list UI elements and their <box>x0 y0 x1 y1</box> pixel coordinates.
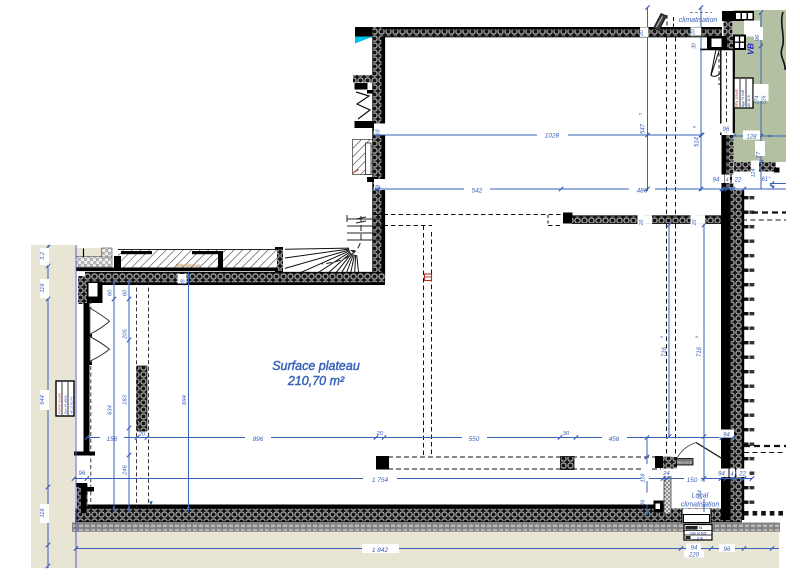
svg-text:547: 547 <box>641 123 647 134</box>
svg-text:183: 183 <box>123 394 129 404</box>
svg-text:20: 20 <box>639 30 645 37</box>
svg-text:24: 24 <box>662 471 669 477</box>
svg-text:896: 896 <box>253 436 264 443</box>
svg-text:60: 60 <box>108 289 114 296</box>
svg-text:FEN 125x95: FEN 125x95 <box>735 89 739 107</box>
svg-text:U IE: U IE <box>697 536 704 540</box>
svg-text:Vide dessus: Vide dessus <box>176 263 202 268</box>
svg-text:climatisation: climatisation <box>681 502 720 509</box>
svg-text:716: 716 <box>697 346 703 357</box>
svg-text:1028: 1028 <box>545 133 560 140</box>
svg-text:124: 124 <box>751 169 757 178</box>
svg-text:REGLAGE: REGLAGE <box>677 461 692 465</box>
svg-text:PORTE 93x205: PORTE 93x205 <box>57 393 61 414</box>
svg-text:205: 205 <box>123 328 129 339</box>
svg-text:AE 31 B: AE 31 B <box>747 94 751 108</box>
svg-text:456: 456 <box>609 436 620 443</box>
svg-text:514: 514 <box>695 136 701 147</box>
svg-text:DY 61: DY 61 <box>693 526 702 530</box>
svg-text:96: 96 <box>724 547 731 553</box>
svg-text:Surface plateau: Surface plateau <box>272 359 360 373</box>
svg-text:49: 49 <box>641 500 647 506</box>
svg-text:4: 4 <box>725 178 728 184</box>
svg-text:28: 28 <box>181 279 187 287</box>
svg-text:22: 22 <box>734 178 742 184</box>
svg-text:1 754: 1 754 <box>372 477 389 484</box>
svg-text:77: 77 <box>756 151 762 158</box>
svg-text:Bois 54 dB(A): Bois 54 dB(A) <box>63 395 67 414</box>
svg-text:20: 20 <box>138 432 146 438</box>
svg-text:94: 94 <box>718 472 725 478</box>
svg-text:20: 20 <box>691 29 697 36</box>
svg-text:226: 226 <box>762 96 768 106</box>
svg-text:544: 544 <box>40 395 46 405</box>
svg-text:3.2: 3.2 <box>40 251 46 260</box>
svg-text:AE 31 B1 P3: AE 31 B1 P3 <box>69 396 73 415</box>
svg-text:118: 118 <box>641 473 647 483</box>
svg-text:30: 30 <box>563 431 570 437</box>
svg-text:18: 18 <box>376 129 382 136</box>
svg-text:60: 60 <box>123 289 129 296</box>
svg-text:94: 94 <box>723 433 730 439</box>
svg-text:1 842: 1 842 <box>372 547 389 554</box>
svg-text:116: 116 <box>40 283 46 293</box>
svg-text:246: 246 <box>123 464 129 475</box>
svg-text:20: 20 <box>639 220 645 227</box>
svg-text:634: 634 <box>108 405 114 415</box>
svg-text:61°: 61° <box>761 177 771 183</box>
svg-text:96: 96 <box>79 471 86 477</box>
svg-text:App 74 HzB: App 74 HzB <box>741 89 745 108</box>
svg-text:150: 150 <box>687 477 698 484</box>
svg-text:30: 30 <box>692 43 698 49</box>
svg-text:694: 694 <box>182 395 188 405</box>
svg-text:94: 94 <box>713 178 720 184</box>
svg-text:550: 550 <box>469 436 480 443</box>
svg-text:96: 96 <box>723 127 730 133</box>
svg-text:542: 542 <box>472 187 483 194</box>
svg-text:Local: Local <box>692 493 709 500</box>
svg-text:116: 116 <box>40 508 46 518</box>
svg-text:220: 220 <box>688 553 700 559</box>
svg-text:274: 274 <box>755 96 761 106</box>
svg-text:VB: VB <box>746 43 756 55</box>
svg-text:20: 20 <box>692 220 698 227</box>
svg-text:716: 716 <box>662 346 668 357</box>
svg-text:climatisation: climatisation <box>679 17 718 24</box>
svg-text:Clim M 605: Clim M 605 <box>690 531 707 535</box>
svg-text:96: 96 <box>755 34 761 41</box>
svg-text:20: 20 <box>376 431 384 437</box>
svg-text:128: 128 <box>746 135 757 141</box>
svg-text:4: 4 <box>730 472 733 478</box>
svg-text:156: 156 <box>107 436 118 443</box>
svg-text:210,70 m²: 210,70 m² <box>287 374 345 388</box>
